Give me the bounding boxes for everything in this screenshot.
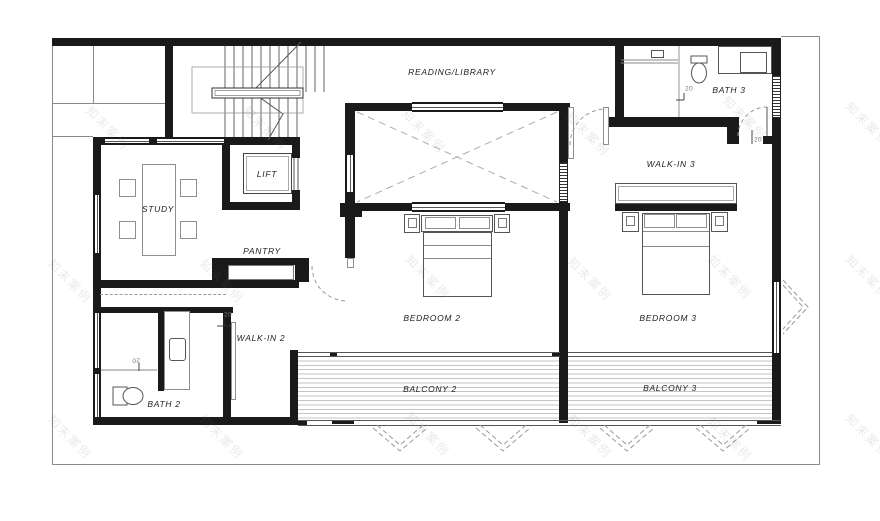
floor-plan: READING/LIBRARY BATH 3 WALK-IN 3 STUDY L… bbox=[0, 0, 880, 521]
label-bath2: BATH 2 bbox=[147, 399, 180, 409]
lift-door-lines bbox=[294, 158, 298, 190]
label-pantry: PANTRY bbox=[243, 246, 281, 256]
label-study: STUDY bbox=[142, 204, 174, 214]
label-balcony2: BALCONY 2 bbox=[403, 384, 457, 394]
label-balcony3: BALCONY 3 bbox=[643, 383, 697, 393]
door-tag: 20 bbox=[685, 86, 693, 93]
label-lift: LIFT bbox=[257, 169, 277, 179]
void-x-lines bbox=[357, 112, 557, 202]
label-bedroom2: BEDROOM 2 bbox=[403, 313, 460, 323]
dimension-ticks bbox=[139, 93, 752, 371]
label-walkin3: WALK-IN 3 bbox=[647, 159, 696, 169]
fixture-lines bbox=[101, 46, 679, 370]
bifold-zigzag-right bbox=[783, 280, 808, 334]
stair-handrail bbox=[212, 88, 303, 98]
toilet-bath3 bbox=[691, 56, 707, 83]
label-walkin2: WALK-IN 2 bbox=[237, 333, 286, 343]
door-swing-arcs bbox=[312, 107, 767, 301]
toilet-bath2 bbox=[113, 387, 143, 405]
door-tag: 20 bbox=[132, 357, 140, 364]
label-bedroom3: BEDROOM 3 bbox=[639, 313, 696, 323]
door-tag: 20 bbox=[224, 312, 232, 319]
label-reading-library: READING/LIBRARY bbox=[408, 67, 496, 77]
